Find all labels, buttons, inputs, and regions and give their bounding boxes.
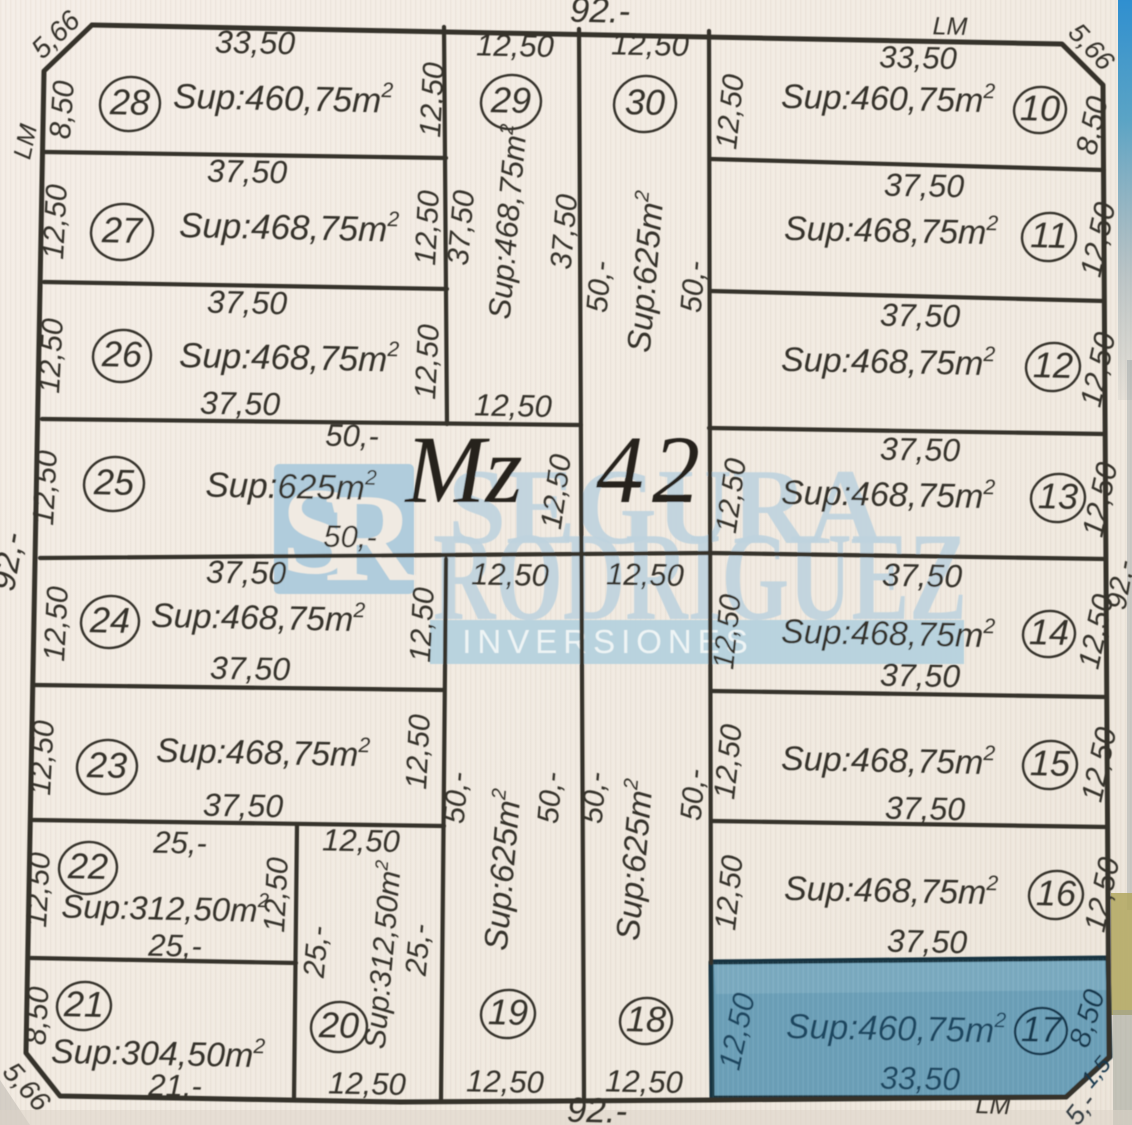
svg-text:12,50: 12,50 <box>606 556 684 593</box>
svg-text:17: 17 <box>1021 1008 1064 1050</box>
svg-text:25,-: 25,- <box>298 925 335 980</box>
svg-text:12,50: 12,50 <box>476 27 554 64</box>
svg-text:37,50: 37,50 <box>882 557 963 595</box>
svg-text:12,50: 12,50 <box>37 183 74 260</box>
svg-text:37,50: 37,50 <box>210 650 291 688</box>
svg-text:19: 19 <box>488 991 529 1033</box>
svg-text:37,50: 37,50 <box>887 923 968 961</box>
svg-text:Sup:468,75m2: Sup:468,75m2 <box>781 471 996 516</box>
svg-text:Sup:460,75m2: Sup:460,75m2 <box>173 74 394 120</box>
svg-text:21,-: 21,- <box>147 1068 202 1104</box>
svg-text:42: 42 <box>596 416 708 523</box>
svg-text:37,50: 37,50 <box>442 189 481 267</box>
svg-text:Mz: Mz <box>403 416 522 523</box>
svg-text:12,50: 12,50 <box>409 323 446 400</box>
svg-text:37,50: 37,50 <box>884 167 965 205</box>
svg-text:28: 28 <box>109 81 151 123</box>
svg-text:Sup:468,75m2: Sup:468,75m2 <box>151 594 366 639</box>
svg-text:37,50: 37,50 <box>207 153 288 191</box>
svg-text:25,-: 25,- <box>147 928 202 964</box>
svg-text:50,-: 50,- <box>325 418 379 454</box>
svg-text:12,50: 12,50 <box>258 856 295 933</box>
svg-text:25,-: 25,- <box>152 825 207 861</box>
svg-text:22: 22 <box>67 845 109 887</box>
svg-text:21: 21 <box>63 983 105 1025</box>
svg-text:37,50: 37,50 <box>200 385 281 423</box>
svg-text:Sup:460,75m2: Sup:460,75m2 <box>781 75 996 120</box>
svg-text:12,50: 12,50 <box>38 585 75 662</box>
svg-text:LM: LM <box>975 1091 1011 1120</box>
svg-text:12,50: 12,50 <box>20 851 57 928</box>
svg-text:37,50: 37,50 <box>880 431 961 469</box>
svg-text:16: 16 <box>1036 872 1078 914</box>
svg-text:12,50: 12,50 <box>24 719 61 796</box>
svg-text:50,-: 50,- <box>576 771 613 825</box>
svg-text:Sup:468,75m2: Sup:468,75m2 <box>781 610 996 655</box>
svg-text:12,50: 12,50 <box>322 822 400 859</box>
svg-text:37,50: 37,50 <box>207 284 288 322</box>
svg-text:12,50: 12,50 <box>328 1065 406 1102</box>
svg-text:50,-: 50,- <box>581 260 618 314</box>
svg-text:25,-: 25,- <box>400 923 437 978</box>
svg-text:13: 13 <box>1038 475 1079 517</box>
svg-text:27: 27 <box>101 209 145 251</box>
svg-text:23: 23 <box>86 744 128 786</box>
svg-text:50,-: 50,- <box>323 519 377 555</box>
svg-text:Sup:468,75m2: Sup:468,75m2 <box>784 867 999 912</box>
svg-text:18: 18 <box>626 998 667 1040</box>
svg-text:12,50: 12,50 <box>605 1063 683 1100</box>
svg-text:12,50: 12,50 <box>409 189 446 266</box>
svg-text:14: 14 <box>1029 611 1070 653</box>
svg-text:33,50: 33,50 <box>880 1060 961 1098</box>
svg-text:20: 20 <box>318 1004 360 1046</box>
svg-text:Sup:460,75m2: Sup:460,75m2 <box>786 1004 1007 1050</box>
svg-text:37,50: 37,50 <box>880 297 961 335</box>
svg-text:15: 15 <box>1030 742 1072 784</box>
svg-text:12,50: 12,50 <box>611 26 689 63</box>
svg-text:Sup:312,50m2: Sup:312,50m2 <box>61 886 269 929</box>
svg-text:50,-: 50,- <box>438 771 475 825</box>
svg-text:24: 24 <box>89 599 131 641</box>
svg-text:25: 25 <box>93 461 136 503</box>
svg-text:8,50: 8,50 <box>44 79 81 140</box>
svg-text:12,50: 12,50 <box>33 317 70 394</box>
svg-text:Sup:468,75m2: Sup:468,75m2 <box>156 729 371 774</box>
svg-text:Sup:468,75m2: Sup:468,75m2 <box>781 737 996 782</box>
svg-text:Sup:468,75m2: Sup:468,75m2 <box>179 333 400 379</box>
svg-text:50,-: 50,- <box>675 260 712 314</box>
svg-text:11: 11 <box>1030 214 1068 256</box>
svg-text:12,50: 12,50 <box>400 713 437 790</box>
svg-text:LM: LM <box>932 12 967 41</box>
svg-text:Sup:468,75m2: Sup:468,75m2 <box>784 207 999 252</box>
svg-text:33,50: 33,50 <box>879 39 957 76</box>
svg-text:26: 26 <box>101 333 144 375</box>
svg-text:12,50: 12,50 <box>404 586 441 663</box>
svg-text:Sup:468,75m2: Sup:468,75m2 <box>179 203 400 249</box>
svg-text:37,50: 37,50 <box>885 790 966 828</box>
svg-text:12,50: 12,50 <box>27 449 64 526</box>
svg-text:12: 12 <box>1033 344 1074 386</box>
svg-text:37,50: 37,50 <box>203 787 284 825</box>
svg-text:29: 29 <box>490 79 532 121</box>
svg-text:37,50: 37,50 <box>880 657 961 695</box>
svg-text:37,50: 37,50 <box>206 554 287 592</box>
svg-text:33,50: 33,50 <box>215 24 296 62</box>
svg-text:37,50: 37,50 <box>545 193 584 271</box>
svg-text:10: 10 <box>1020 87 1061 129</box>
svg-text:50,-: 50,- <box>532 771 569 825</box>
svg-text:12,50: 12,50 <box>471 556 549 593</box>
svg-text:12,50: 12,50 <box>466 1063 544 1100</box>
svg-text:30: 30 <box>625 81 666 123</box>
svg-text:50,-: 50,- <box>675 768 712 822</box>
svg-text:8,50: 8,50 <box>19 986 55 1046</box>
svg-text:Sup:625m2: Sup:625m2 <box>205 463 377 508</box>
svg-text:12,50: 12,50 <box>414 61 451 138</box>
svg-text:Sup:468,75m2: Sup:468,75m2 <box>781 338 996 383</box>
